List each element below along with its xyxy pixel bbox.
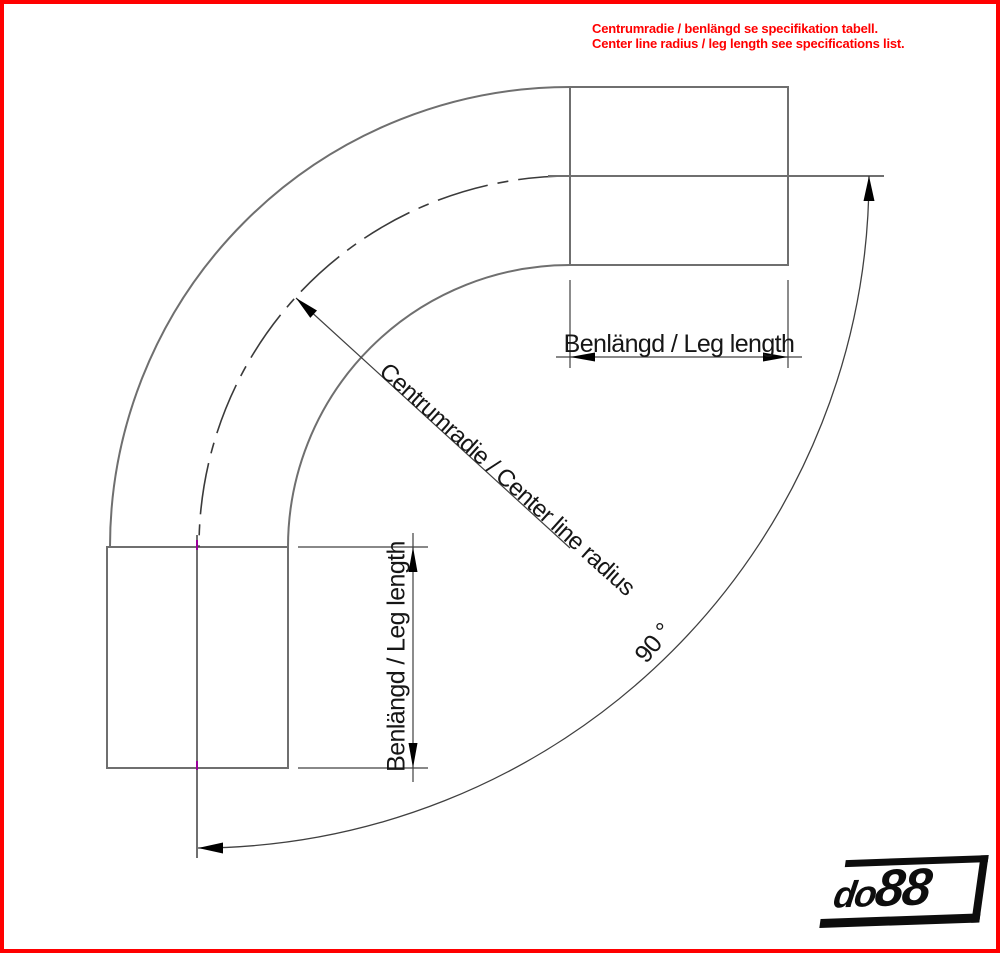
logo-text: do88 (831, 861, 933, 917)
spec-note-line-1: Centrumradie / benlängd se specifikation… (592, 21, 904, 36)
leg-length-label-top: Benlängd / Leg length (560, 331, 798, 358)
spec-note: Centrumradie / benlängd se specifikation… (592, 21, 904, 51)
drawing-canvas: Centrumradie / benlängd se specifikation… (0, 0, 1000, 953)
logo-text-do: do (831, 873, 878, 916)
leg-length-label-left: Benlängd / Leg length (384, 538, 411, 776)
do88-logo: do88 (822, 855, 988, 928)
logo-text-88: 88 (872, 858, 934, 918)
spec-note-line-2: Center line radius / leg length see spec… (592, 36, 904, 51)
angle-arc-arrowhead-bottom (198, 843, 223, 854)
angle-arc-arrowhead-top (864, 176, 875, 201)
